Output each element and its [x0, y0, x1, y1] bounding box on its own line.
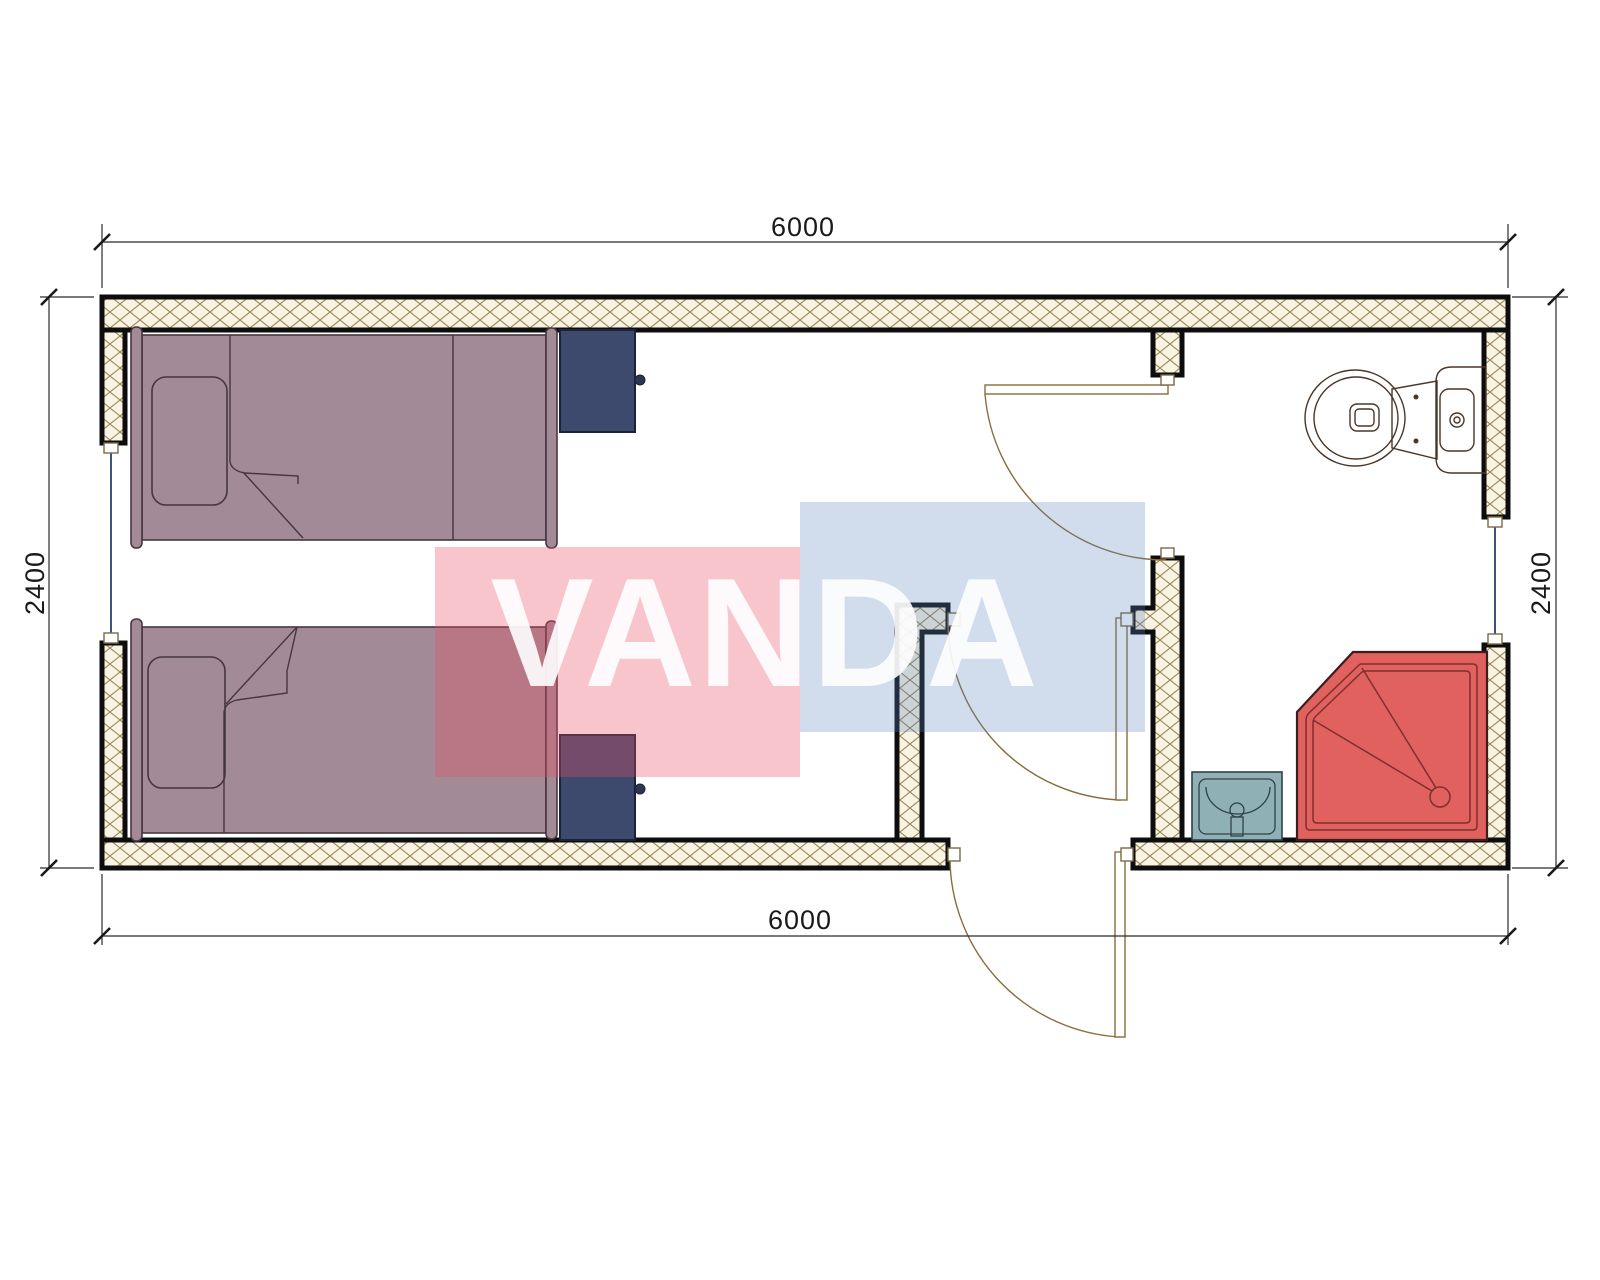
wall-bottom-right	[1133, 840, 1508, 868]
dimension-left: 2400	[20, 289, 94, 876]
toilet-drain-inner	[1355, 409, 1374, 426]
door-bathroom-jamb-bottom	[1161, 548, 1174, 558]
shower-tray	[1297, 652, 1487, 840]
nightstand-1-body	[560, 330, 635, 432]
wall-left-upper	[102, 330, 125, 443]
window-left	[104, 443, 118, 643]
nightstand-1	[560, 330, 645, 432]
window-left-jamb-top	[104, 443, 118, 453]
window-right-jamb-top	[1488, 517, 1502, 527]
dimension-bottom: 6000	[94, 874, 1516, 945]
door-bathroom-jamb-top	[1161, 375, 1174, 385]
toilet-tank-lid	[1440, 389, 1474, 451]
toilet-hinge-dot-top	[1414, 395, 1419, 400]
floor-plan-drawing: VANDA 6000 6000 2400 2400	[0, 0, 1600, 1280]
wall-top	[102, 297, 1508, 330]
nightstand-2-knob	[635, 784, 645, 794]
toilet-neck	[1392, 381, 1437, 459]
toilet	[1305, 367, 1486, 473]
door-entrance-jamb-left	[948, 848, 960, 861]
toilet-flush-knob-inner	[1454, 417, 1460, 423]
door-entrance-jamb-right	[1121, 848, 1133, 861]
toilet-hinge-dot-bottom	[1414, 439, 1419, 444]
door-entrance-arc	[950, 860, 1120, 1037]
window-right	[1488, 517, 1502, 644]
dimension-bottom-value: 6000	[768, 905, 832, 935]
wall-left-lower	[102, 643, 125, 840]
watermark-text: VANDA	[490, 546, 1040, 719]
toilet-seat	[1314, 377, 1398, 459]
dimension-right-value: 2400	[1526, 551, 1556, 615]
bed-2-headboard	[131, 619, 142, 841]
dimension-top: 6000	[94, 212, 1516, 288]
toilet-flush-knob-outer	[1450, 413, 1464, 427]
toilet-tank	[1436, 367, 1486, 473]
sink-counter	[1192, 772, 1282, 840]
bed-1	[131, 327, 557, 548]
door-entrance	[948, 848, 1133, 1037]
bed-1-footboard	[546, 328, 557, 548]
dimension-left-value: 2400	[20, 551, 50, 615]
window-right-jamb-bottom	[1488, 634, 1502, 644]
door-bathroom-leaf	[985, 385, 1168, 394]
sink	[1192, 772, 1282, 840]
dimension-top-value: 6000	[771, 212, 835, 242]
wall-bottom-left	[102, 840, 948, 868]
bed-2-pillow	[148, 657, 225, 788]
nightstand-1-knob	[635, 375, 645, 385]
watermark: VANDA	[435, 502, 1145, 777]
floor-plan-page: VANDA 6000 6000 2400 2400	[0, 0, 1600, 1280]
wall-right-upper	[1484, 330, 1508, 517]
dimension-right: 2400	[1512, 289, 1568, 876]
partition-stub-top	[1153, 330, 1182, 375]
bed-1-pillow	[152, 377, 227, 505]
bed-1-headboard	[131, 327, 142, 548]
door-entrance-leaf	[1115, 852, 1125, 1037]
window-left-jamb-bottom	[104, 633, 118, 643]
shower-tray-outline	[1297, 652, 1487, 840]
